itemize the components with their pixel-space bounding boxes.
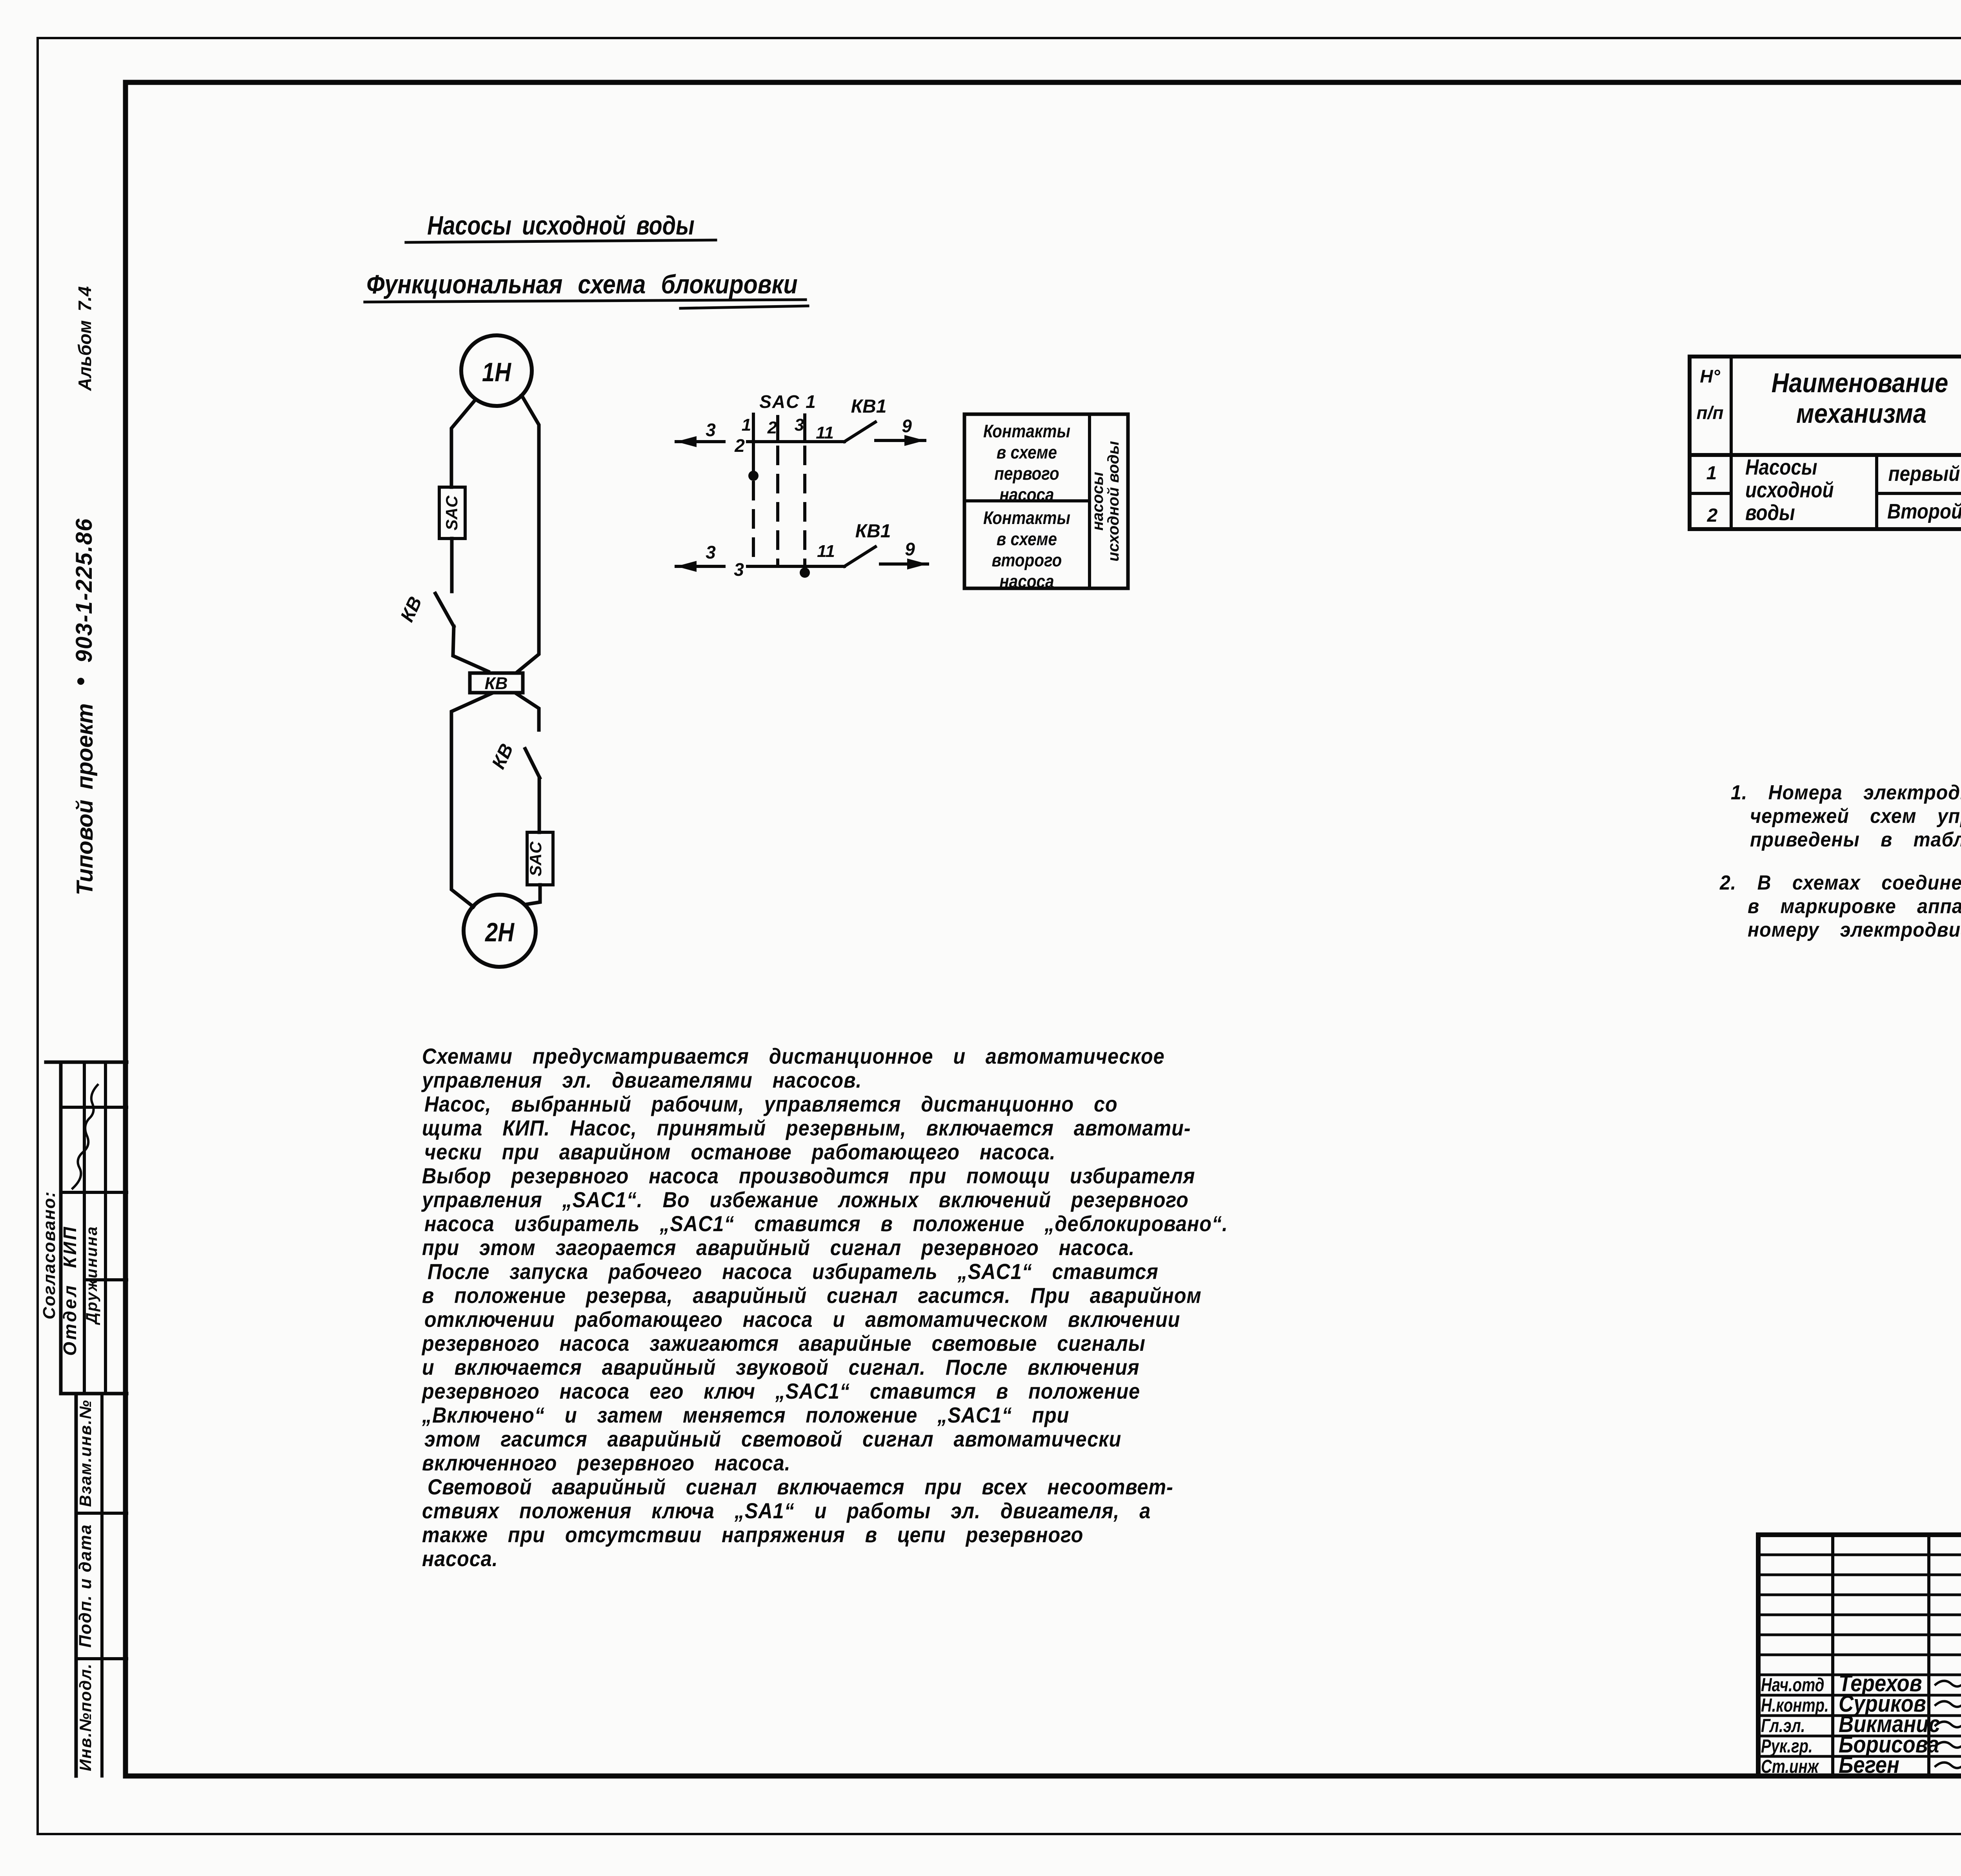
svg-text:SAC 1: SAC 1	[759, 391, 816, 412]
svg-text:чертежей схем управления эл: чертежей схем управления электродвигател…	[1750, 804, 1961, 827]
svg-text:в положение резерва, аварийны: в положение резерва, аварийный сигнал га…	[422, 1284, 1202, 1308]
svg-text:КВ: КВ	[397, 593, 426, 625]
svg-text:Выбор резервного насоса про: Выбор резервного насоса производится при…	[422, 1164, 1195, 1188]
svg-text:Дружинина: Дружинина	[83, 1226, 100, 1325]
svg-text:3: 3	[795, 415, 804, 435]
svg-text:чески при аварийном останов: чески при аварийном останове работающего…	[424, 1140, 1055, 1165]
svg-text:Рук.гр.: Рук.гр.	[1761, 1736, 1813, 1757]
svg-text:КВ: КВ	[488, 741, 517, 772]
svg-text:Насосы: Насосы	[1745, 455, 1817, 479]
svg-text:Беген: Беген	[1839, 1752, 1899, 1778]
svg-text:п/п: п/п	[1697, 402, 1724, 423]
svg-text:в схеме: в схеме	[997, 443, 1057, 463]
svg-text:КВ1: КВ1	[851, 396, 887, 417]
svg-text:2: 2	[734, 435, 745, 456]
svg-text:в маркировке аппаратов и п: в маркировке аппаратов и проводов соотве…	[1748, 895, 1961, 917]
svg-text:исходной воды: исходной воды	[1105, 441, 1122, 561]
svg-text:управления эл. двигателями н: управления эл. двигателями насосов.	[421, 1068, 862, 1093]
svg-text:3: 3	[706, 542, 716, 562]
svg-text:Н°: Н°	[1700, 366, 1720, 386]
svg-text:насоса.: насоса.	[422, 1547, 498, 1571]
svg-text:903-1-225.86: 903-1-225.86	[71, 518, 97, 662]
svg-text:Насосы исходной воды: Насосы исходной воды	[427, 211, 695, 240]
svg-text:включенного резервного насо: включенного резервного насоса.	[422, 1451, 791, 1476]
svg-text:Схемами предусматривается ди: Схемами предусматривается дистанционное …	[422, 1044, 1165, 1069]
svg-text:при этом загорается аварийн: при этом загорается аварийный сигнал рез…	[422, 1236, 1135, 1260]
svg-text:приведены в таблице.: приведены в таблице.	[1750, 828, 1961, 851]
svg-text:второго: второго	[992, 551, 1062, 571]
svg-text:КВ: КВ	[485, 674, 508, 693]
svg-text:2: 2	[1707, 505, 1718, 526]
svg-text:резервного насоса его ключ: резервного насоса его ключ „SAC1“ ставит…	[421, 1379, 1140, 1404]
svg-text:9: 9	[902, 416, 912, 436]
svg-text:Подп. и дата: Подп. и дата	[76, 1524, 95, 1647]
svg-text:первый: первый	[1888, 462, 1960, 486]
svg-text:SAC: SAC	[442, 495, 461, 530]
svg-text:щита КИП. Насос, принятый р: щита КИП. Насос, принятый резервным, вкл…	[422, 1116, 1191, 1141]
svg-text:насоса: насоса	[999, 485, 1054, 505]
svg-text:отключении работающего насос: отключении работающего насоса и автомати…	[424, 1308, 1180, 1332]
svg-text:Взам.инв.№: Взам.инв.№	[76, 1399, 95, 1507]
svg-text:Контакты: Контакты	[983, 422, 1070, 442]
svg-text:После запуска рабочего насо: После запуска рабочего насоса избиратель…	[427, 1260, 1159, 1284]
svg-text:Гл.эл.: Гл.эл.	[1761, 1716, 1805, 1736]
svg-text:Отдел КИП: Отдел КИП	[60, 1225, 80, 1356]
svg-text:11: 11	[816, 423, 834, 442]
svg-text:Альбом 7.4: Альбом 7.4	[75, 286, 95, 391]
svg-text:1: 1	[1706, 463, 1717, 484]
svg-text:воды: воды	[1745, 500, 1795, 525]
svg-text:3: 3	[734, 559, 744, 580]
svg-text:Согласовано:: Согласовано:	[40, 1191, 59, 1319]
svg-text:этом гасится аварийный свет: этом гасится аварийный световой сигнал а…	[424, 1427, 1121, 1452]
svg-text:SAC: SAC	[526, 841, 545, 876]
svg-text:2. В схемах соединений щитов: 2. В схемах соединений щитов КИП и НКУ и…	[1719, 871, 1961, 894]
svg-text:Типовой проект: Типовой проект	[72, 703, 98, 895]
svg-text:Ст.инж: Ст.инж	[1761, 1756, 1819, 1777]
svg-text:1: 1	[742, 415, 751, 435]
svg-text:номеру электродвигателя по: номеру электродвигателя по таблице.	[1748, 918, 1961, 941]
svg-text:2Н: 2Н	[485, 918, 515, 947]
svg-text:и включается аварийный звук: и включается аварийный звуковой сигнал. …	[422, 1356, 1139, 1380]
svg-text:исходной: исходной	[1745, 478, 1834, 502]
svg-text:1. Номера электродвигателей: 1. Номера электродвигателей по плану и н…	[1731, 781, 1961, 804]
svg-text:также при отсутствии напряж: также при отсутствии напряжения в цепи р…	[422, 1523, 1083, 1547]
svg-text:Наименование: Наименование	[1772, 367, 1948, 398]
svg-text:3: 3	[706, 420, 716, 440]
svg-text:Н.контр.: Н.контр.	[1761, 1695, 1829, 1716]
svg-text:насоса избиратель „SAC1“ ста: насоса избиратель „SAC1“ ставится в поло…	[424, 1212, 1228, 1236]
svg-text:ствиях положения ключа „SA1: ствиях положения ключа „SA1“ и работы эл…	[422, 1499, 1151, 1523]
svg-text:насоса: насоса	[999, 572, 1054, 592]
svg-text:в схеме: в схеме	[997, 530, 1057, 550]
svg-text:Второй: Второй	[1887, 499, 1961, 523]
svg-text:1Н: 1Н	[482, 358, 511, 387]
svg-text:насосы: насосы	[1089, 472, 1106, 531]
svg-text:Нач.отд: Нач.отд	[1761, 1675, 1824, 1696]
svg-text:Насос, выбранный рабочим, упр: Насос, выбранный рабочим, управляется ди…	[424, 1092, 1118, 1117]
svg-text:Функциональная схема блокировк: Функциональная схема блокировки	[366, 269, 797, 299]
svg-text:2: 2	[767, 418, 777, 437]
svg-text:11: 11	[817, 542, 835, 561]
svg-text:механизма: механизма	[1796, 398, 1926, 429]
svg-text:управления „SAC1“. Во избежа: управления „SAC1“. Во избежание ложных в…	[421, 1188, 1189, 1212]
svg-text:КВ1: КВ1	[855, 521, 891, 542]
svg-text:„Включено“ и затем меняется: „Включено“ и затем меняется положение „S…	[422, 1403, 1069, 1428]
svg-text:резервного насоса зажигаются: резервного насоса зажигаются аварийные с…	[421, 1332, 1146, 1356]
svg-text:Световой аварийный сигнал в: Световой аварийный сигнал включается при…	[427, 1475, 1173, 1499]
svg-text:Контакты: Контакты	[983, 508, 1070, 528]
svg-text:9: 9	[905, 539, 915, 559]
svg-text:Инв.№подл.: Инв.№подл.	[76, 1663, 95, 1771]
svg-text:первого: первого	[994, 464, 1059, 484]
